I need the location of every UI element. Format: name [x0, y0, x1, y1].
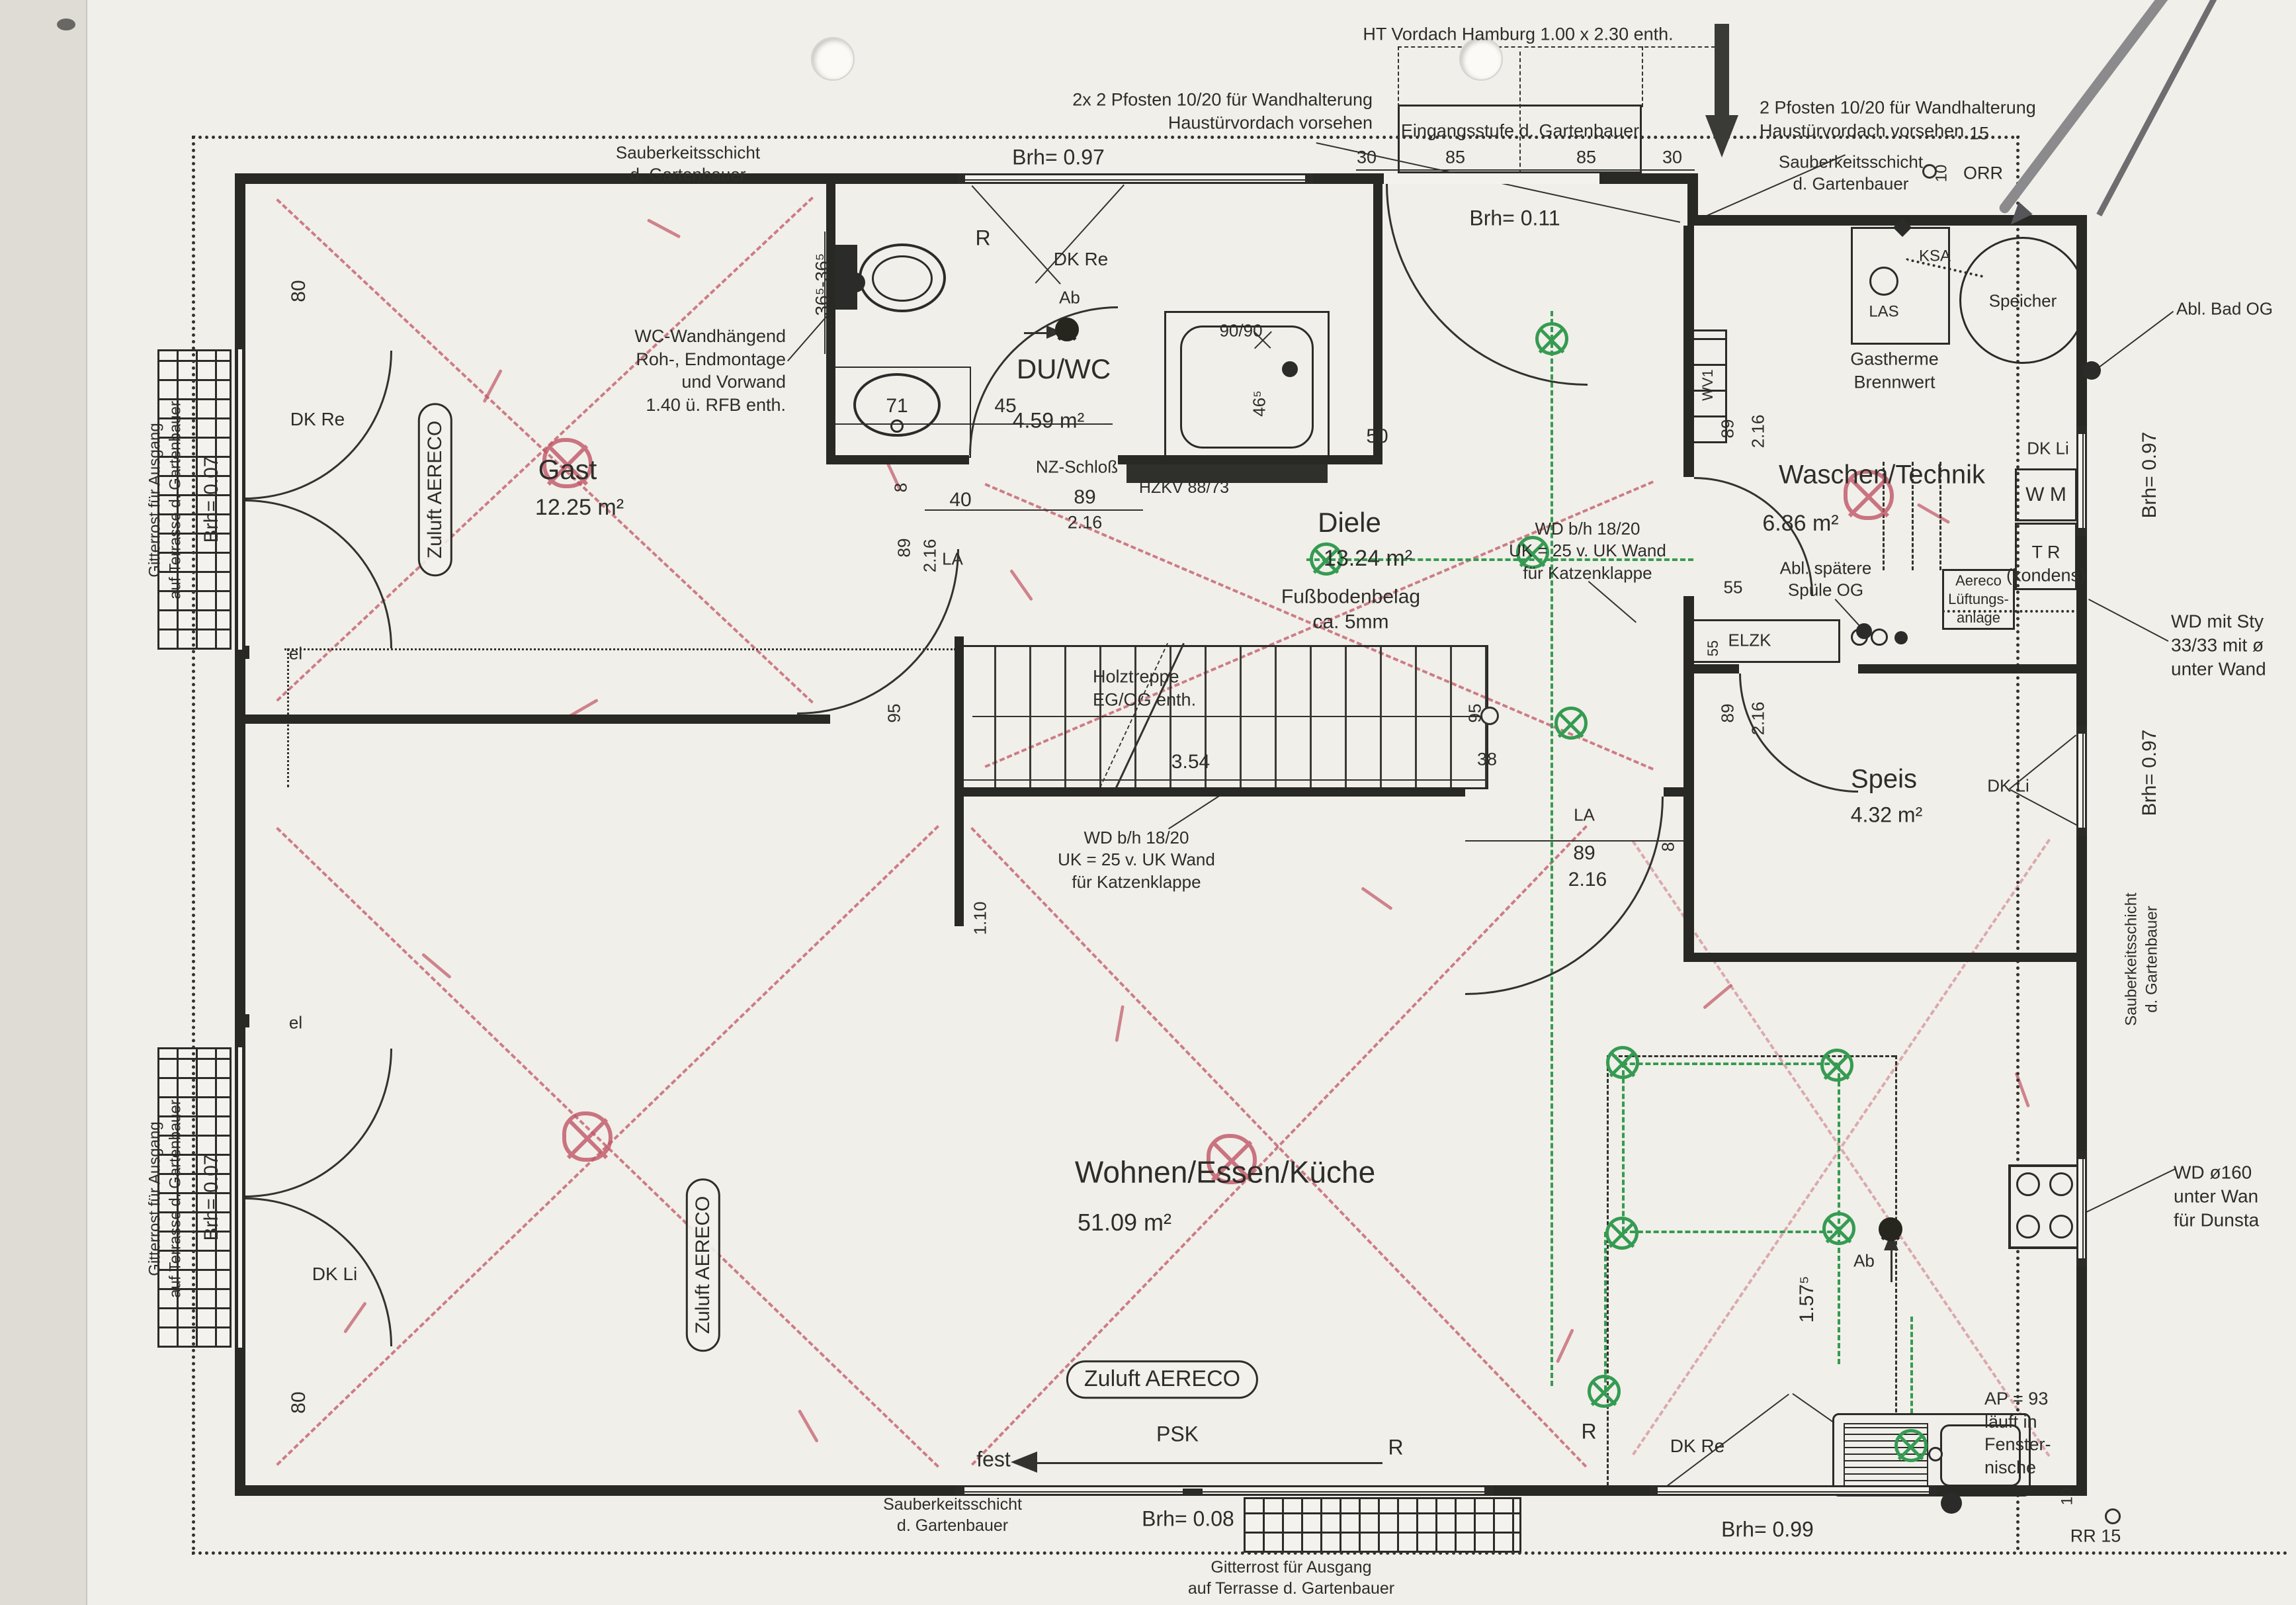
- label-sauberkeit-tr: Sauberkeitsschicht d. Gartenbauer: [1779, 152, 1923, 196]
- label-brh-097-r2: Brh= 0.97: [2137, 730, 2162, 816]
- wall: [955, 787, 964, 926]
- wall: [1683, 596, 1694, 673]
- electrical-line: [1838, 1065, 1840, 1232]
- entrance-step-centerline: [1519, 52, 1521, 173]
- wall: [1664, 787, 1694, 797]
- ceiling-outlet-green-icon: [1605, 1217, 1638, 1250]
- electrical-line: [1622, 1231, 1840, 1233]
- label-speis-name: Speis: [1851, 762, 1917, 796]
- label-brh-007-oben: Brh= 0.07: [199, 456, 224, 543]
- label-dim-85a: 85: [1445, 146, 1465, 169]
- entrance-dim-line: [1356, 169, 1695, 171]
- label-r-psk: R: [1388, 1434, 1403, 1461]
- label-dim-216-sp: 2.16: [1747, 702, 1769, 736]
- label-dim-89-sp: 89: [1717, 704, 1738, 723]
- label-psk: PSK: [1156, 1421, 1199, 1448]
- french-door-arc: [245, 1049, 392, 1197]
- red-tick: [1556, 1328, 1574, 1364]
- wall: [1118, 455, 1382, 464]
- label-r-duwc: R: [975, 225, 990, 252]
- ceiling-outlet-green-icon: [1535, 322, 1568, 355]
- ceiling-outlet-green-icon: [1820, 1049, 1853, 1082]
- label-ab-duwc: Ab: [1059, 286, 1080, 308]
- red-tick: [482, 369, 503, 404]
- label-eingangsstufe: Eingangsstufe d. Gartenbauer: [1401, 120, 1639, 143]
- leader-line: [2085, 1168, 2176, 1213]
- entrance-arrow-head: [1705, 115, 1738, 157]
- label-speis-area: 4.32 m²: [1851, 802, 1922, 829]
- label-dim-95-l: 95: [883, 704, 905, 723]
- label-aereco-anlage: Aereco Lüftungs- anlage: [1948, 572, 2009, 627]
- label-tr-kondens: T R (kondens): [2006, 541, 2086, 586]
- wall: [1683, 226, 1694, 477]
- label-gitterrost-lo: Gitterrost für Ausgang auf Terrasse d. G…: [145, 401, 185, 599]
- label-el-oben: el: [289, 642, 302, 664]
- label-dim-30b: 30: [1662, 146, 1682, 169]
- label-dim-216-wc: 2.16: [1068, 511, 1103, 535]
- leader-dot: [2082, 361, 2101, 380]
- label-dkre-kueche: DK Re: [1670, 1434, 1724, 1458]
- label-dim-9090: 90/90: [1219, 320, 1262, 341]
- label-rr-15: RR 15: [2070, 1525, 2121, 1548]
- label-dim-80-unten: 80: [286, 1391, 312, 1413]
- ht-vordach-dim-line: [1398, 46, 1715, 48]
- boundary-top: [192, 136, 2016, 139]
- wall: [1683, 664, 1694, 962]
- label-dim-55-wt: 55: [1724, 576, 1743, 598]
- leader-dot: [845, 273, 865, 292]
- label-dim-8-wc: 8: [890, 483, 912, 492]
- electrical-line: [1622, 1063, 1625, 1232]
- label-wm: W M: [2025, 482, 2066, 507]
- wall: [826, 173, 835, 464]
- floor-plan: HT Vordach Hamburg 1.00 x 2.30 enth.2x 2…: [0, 0, 2296, 1605]
- label-diele-area: 13.24 m²: [1324, 544, 1412, 574]
- label-dim-50: 50: [1366, 424, 1388, 449]
- label-brh-011: Brh= 0.11: [1469, 205, 1560, 232]
- red-tick: [1361, 887, 1393, 910]
- label-la-diele: LA: [942, 548, 963, 570]
- label-dim-89-wc: 89: [1074, 485, 1095, 510]
- label-dim-110: 1.10: [969, 902, 991, 935]
- label-dim-80-oben: 80: [286, 280, 312, 302]
- label-dim-354: 3.54: [1171, 750, 1210, 775]
- label-katzenklappe-1: WD b/h 18/20 UK = 25 v. UK Wand für Katz…: [1509, 518, 1666, 584]
- shower-drain-dot: [1282, 361, 1298, 377]
- label-brh-008: Brh= 0.08: [1142, 1506, 1234, 1533]
- label-brh-097-r1: Brh= 0.97: [2137, 432, 2162, 519]
- electrical-line: [1838, 1232, 1840, 1364]
- boundary-left: [192, 136, 195, 1551]
- red-tick: [647, 218, 681, 239]
- label-elzk: ELZK: [1728, 629, 1771, 651]
- wall: [1858, 664, 2087, 673]
- entrance-arrow: [1715, 24, 1729, 116]
- french-door-arc: [245, 499, 392, 648]
- label-duwc-area: 4.59 m²: [1013, 408, 1084, 435]
- label-dim-30a: 30: [1357, 146, 1377, 169]
- label-dim-55-sp: 55: [1704, 640, 1722, 656]
- label-dim-1575: 1.57⁵: [1795, 1276, 1820, 1323]
- label-dim-216-flur: 2.16: [1568, 867, 1607, 892]
- label-fest: fest: [976, 1446, 1011, 1473]
- door-arc-gast: [797, 549, 959, 715]
- staircase: [959, 645, 1488, 789]
- dim-extension: [1642, 46, 1643, 107]
- ab-arrow-line: [1891, 1245, 1892, 1282]
- red-tick: [421, 953, 452, 979]
- label-dim-216-wt: 2.16: [1747, 415, 1769, 449]
- wall: [959, 787, 1465, 797]
- label-dim-216-diele: 2.16: [919, 539, 941, 573]
- label-dim-45: 45: [994, 394, 1016, 419]
- label-speicher: Speicher: [1989, 290, 2057, 312]
- window-psk-bottom: [960, 1485, 1488, 1496]
- label-dkre-gast: DK Re: [290, 408, 345, 431]
- label-katzenklappe-2: WD b/h 18/20 UK = 25 v. UK Wand für Katz…: [1058, 827, 1215, 893]
- hole-punch-left: [811, 37, 855, 81]
- label-sauberkeit-tl: Sauberkeitsschicht d. Gartenbauer: [616, 142, 760, 187]
- label-pfosten-rechts: 2 Pfosten 10/20 für Wandhalterung Haustü…: [1760, 96, 2036, 142]
- drain-symbol-icon: [1879, 1217, 1902, 1241]
- psk-arrow-head: [1011, 1452, 1037, 1473]
- basin-tap: [890, 419, 904, 433]
- label-ht-vordach: HT Vordach Hamburg 1.00 x 2.30 enth.: [1363, 23, 1673, 46]
- label-ap-93: AP = 93 läuft in Fenster- nische: [1984, 1387, 2051, 1479]
- wall: [1683, 953, 2087, 962]
- leader-line: [1588, 581, 1637, 623]
- label-sauberkeit-bl: Sauberkeitsschicht d. Gartenbauer: [883, 1494, 1022, 1536]
- label-waschen-name: Waschen/Technik: [1779, 458, 1985, 492]
- label-gitterrost-lu: Gitterrost für Ausgang auf Terrasse d. G…: [145, 1100, 185, 1298]
- wall: [1599, 173, 1698, 184]
- el-junction-box: [236, 1014, 249, 1027]
- spuele-og-circle: [1871, 629, 1888, 646]
- dim-extension: [1398, 46, 1399, 107]
- window-speis-right: [2076, 731, 2087, 830]
- label-gastherme: Gastherme Brennwert: [1850, 347, 1939, 393]
- label-wd-160: WD ø160 unter Wan für Dunsta: [2174, 1160, 2259, 1231]
- entrance-opening: [1384, 173, 1599, 184]
- label-gast-name: Gast: [538, 452, 597, 488]
- label-dim-40: 40: [949, 488, 971, 513]
- scan-edge-strip: [0, 0, 87, 1605]
- label-dim-10-br: 10: [2058, 1488, 2078, 1506]
- label-duwc-name: DU/WC: [1017, 351, 1111, 387]
- label-nz-schloss: NZ-Schloß: [1036, 456, 1118, 478]
- window-waschen-right: [2076, 431, 2087, 531]
- drain-symbol-icon: [1055, 318, 1079, 341]
- label-dim-465: 46⁵: [1248, 390, 1270, 417]
- label-ab-kueche: Ab: [1853, 1250, 1875, 1272]
- ceiling-outlet-green-icon: [1822, 1212, 1855, 1245]
- label-dim-15: 15: [1969, 122, 1989, 146]
- label-zuluft-links-oben: Zuluft AERECO: [418, 403, 452, 576]
- window-kueche-right: [2076, 1156, 2087, 1261]
- label-dim-89-wt: 89: [1717, 419, 1738, 439]
- label-dkli-gast: DK Li: [312, 1262, 357, 1286]
- label-dim-71: 71: [886, 394, 908, 419]
- label-dim-10-orr: 10: [1932, 165, 1953, 183]
- wall: [2076, 215, 2087, 1496]
- label-brh-097-top: Brh= 0.97: [1012, 144, 1105, 171]
- label-pfosten-links: 2x 2 Pfosten 10/20 für Wandhalterung Hau…: [1072, 88, 1373, 134]
- gastherme-unit: [1851, 227, 1950, 345]
- dim-line: [959, 779, 1488, 781]
- boundary-bottom: [192, 1551, 2289, 1555]
- window-kueche-bottom: [1655, 1485, 1932, 1496]
- label-abl-bad-og: Abl. Bad OG: [2176, 298, 2273, 320]
- label-dim-89-flur: 89: [1573, 841, 1595, 866]
- label-zuluft-unten: Zuluft AERECO: [1066, 1360, 1258, 1399]
- red-tick: [1703, 983, 1733, 1010]
- label-wohnen-name: Wohnen/Essen/Küche: [1075, 1153, 1375, 1192]
- leader-line: [2094, 311, 2174, 372]
- label-abl-spuele: Abl. spätere Spüle OG: [1780, 558, 1872, 602]
- leader-line: [2088, 599, 2168, 642]
- label-dim-95-r: 95: [1464, 704, 1486, 723]
- label-dim-85b: 85: [1576, 146, 1596, 169]
- leader-line: [1168, 791, 1226, 830]
- rr-circle: [2105, 1508, 2121, 1524]
- electrical-line: [1622, 1063, 1838, 1065]
- terrace-door-opening-top: [236, 349, 244, 650]
- label-hzkv: HZKV 88/73: [1139, 477, 1229, 498]
- label-zuluft-links-unten: Zuluft AERECO: [686, 1178, 720, 1352]
- ceiling-outlet-green-icon: [1554, 707, 1588, 740]
- stair-walk-line: [972, 716, 1482, 717]
- label-dkli-wt: DK Li: [2027, 437, 2069, 459]
- red-tick: [1917, 503, 1951, 524]
- label-wc-hinweis: WC-Wandhängend Roh-, Endmontage und Vorw…: [634, 325, 786, 416]
- scan-corner-mark: [57, 19, 75, 30]
- electrical-line: [1910, 1317, 1913, 1429]
- leader-dot: [1856, 623, 1872, 639]
- label-las: LAS: [1869, 302, 1898, 323]
- gitterrost-bottom: [1244, 1497, 1521, 1553]
- label-gitterrost-unten: Gitterrost für Ausgang auf Terrasse d. G…: [1188, 1557, 1394, 1599]
- hob: [2008, 1164, 2080, 1249]
- label-wd-sty: WD mit Sty 33/33 mit ø unter Wand: [2171, 609, 2266, 680]
- wall: [1373, 173, 1382, 464]
- wall: [955, 636, 964, 787]
- las-flue: [1869, 267, 1898, 296]
- worktop-outline: [1607, 1055, 1609, 1492]
- label-ksa: KSA: [1919, 247, 1951, 267]
- label-dim-89-diele: 89: [893, 539, 915, 558]
- label-sauberkeit-rechts: Sauberkeitsschicht d. Gartenbauer: [2121, 892, 2162, 1025]
- red-tick: [1009, 569, 1033, 601]
- label-dim-8-flur: 8: [1657, 842, 1679, 851]
- label-gast-area: 12.25 m²: [535, 494, 624, 523]
- label-wohnen-area: 51.09 m²: [1078, 1207, 1171, 1238]
- label-waschen-area: 6.86 m²: [1762, 509, 1838, 539]
- label-fussboden: Fußbodenbelag ca. 5mm: [1281, 585, 1420, 636]
- door-arc-flur: [1465, 797, 1664, 995]
- psk-arrow-line: [1035, 1462, 1382, 1464]
- ceiling-mark-red-icon: [562, 1111, 613, 1162]
- label-dim-38: 38: [1477, 748, 1497, 771]
- label-dim-365: 36⁵-36⁵: [810, 253, 834, 316]
- label-la-flur: LA: [1574, 804, 1595, 826]
- drain-dot: [1894, 631, 1908, 644]
- wall: [826, 455, 969, 464]
- label-orr: ORR: [1963, 162, 2003, 185]
- label-el-unten: el: [289, 1012, 302, 1033]
- ceiling-outlet-green-icon: [1606, 1046, 1639, 1079]
- label-dkre-duwc: DK Re: [1054, 247, 1108, 271]
- label-brh-099: Brh= 0.99: [1721, 1516, 1814, 1543]
- red-tick: [798, 1409, 819, 1443]
- window-duwc-top: [962, 173, 1308, 184]
- toilet-bowl-inner: [872, 255, 933, 302]
- shower-tray-inner: [1180, 325, 1314, 449]
- red-tick: [1115, 1005, 1125, 1042]
- worktop-outline: [1607, 1055, 1895, 1057]
- label-wv1: WV1: [1699, 369, 1717, 401]
- label-r-kueche: R: [1581, 1418, 1596, 1446]
- label-diele-name: Diele: [1318, 505, 1381, 541]
- sink-drain-dot: [1941, 1493, 1962, 1514]
- ceiling-outlet-green-icon: [1894, 1429, 1928, 1462]
- label-dkli-speis: DK Li: [1987, 775, 2029, 797]
- terrace-door-opening-bottom: [236, 1047, 244, 1348]
- label-holztreppe: Holztreppe EG/OG enth.: [1093, 665, 1196, 711]
- wall: [235, 715, 830, 724]
- label-brh-007-unten: Brh= 0.07: [199, 1154, 224, 1241]
- ceiling-outlet-green-icon: [1588, 1375, 1621, 1408]
